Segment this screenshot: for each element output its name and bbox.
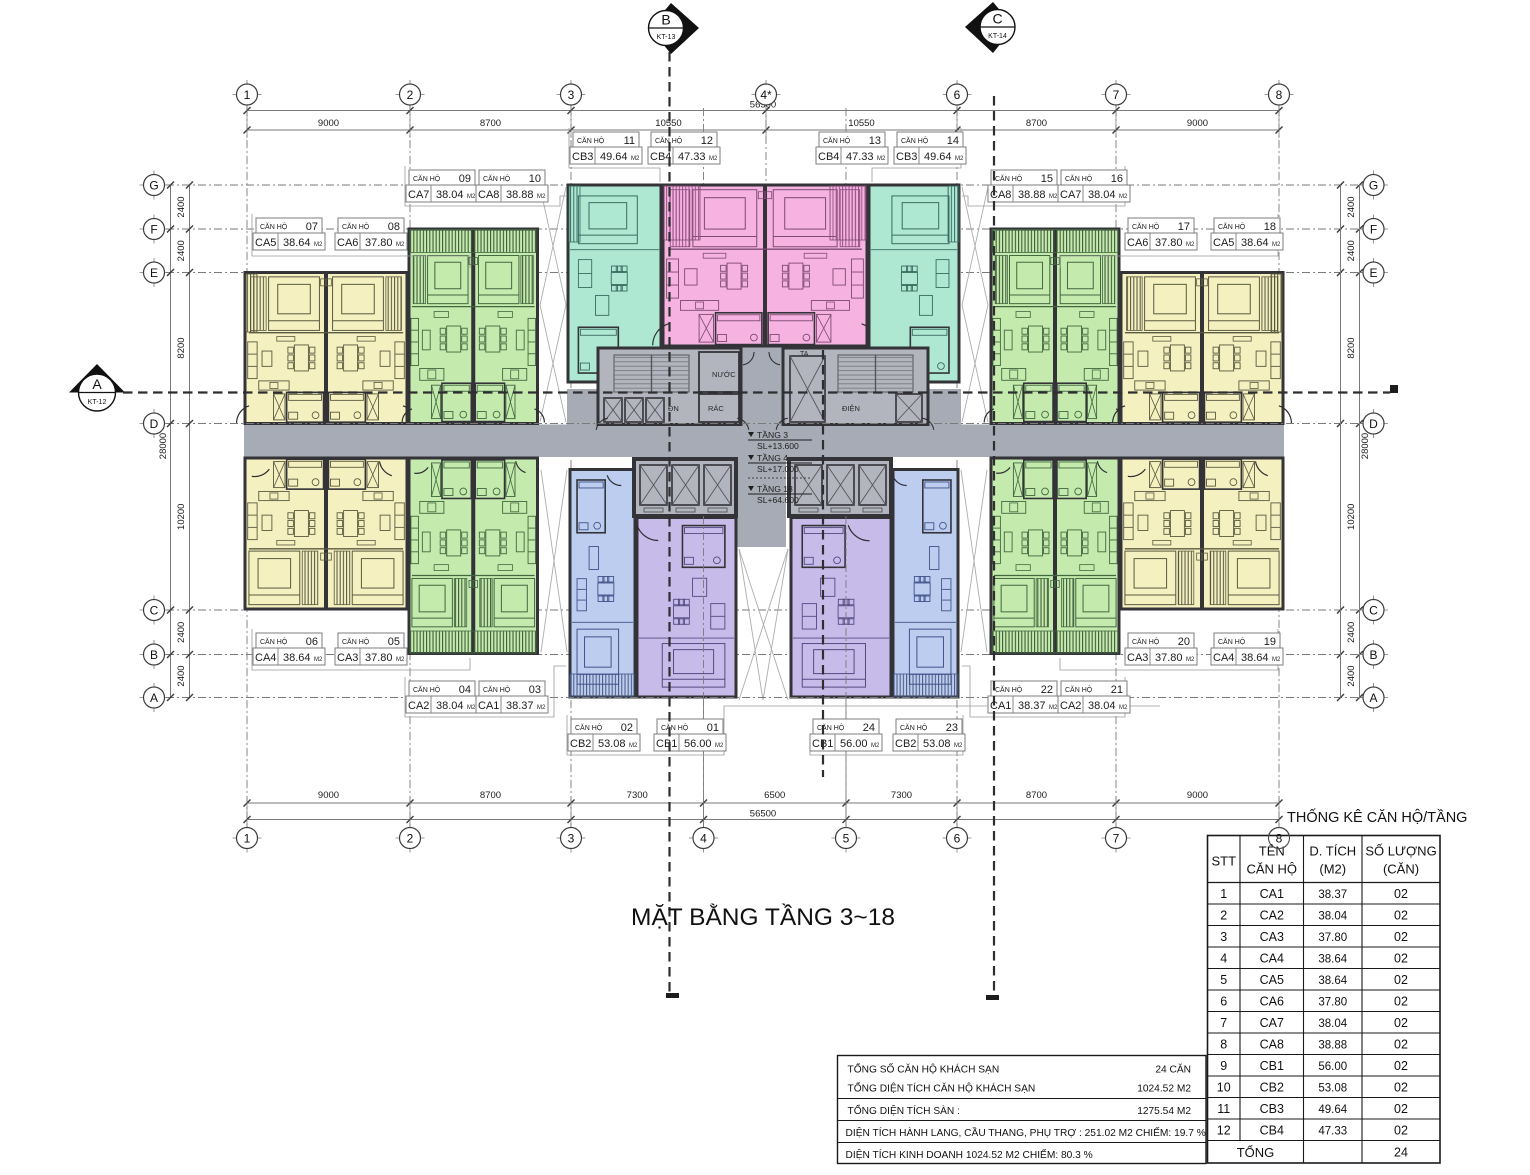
svg-text:CB2: CB2 <box>570 738 591 750</box>
svg-text:KT-12: KT-12 <box>88 399 107 406</box>
svg-text:28000: 28000 <box>1360 433 1371 459</box>
svg-text:G: G <box>149 178 158 192</box>
svg-text:38.64: 38.64 <box>283 652 311 664</box>
svg-text:3: 3 <box>568 88 575 102</box>
svg-text:38.37: 38.37 <box>506 700 534 712</box>
svg-text:B: B <box>1369 648 1377 662</box>
svg-text:C: C <box>1369 603 1378 617</box>
svg-text:CĂN HỘ: CĂN HỘ <box>342 222 370 231</box>
svg-text:A: A <box>150 691 158 705</box>
svg-text:CA3: CA3 <box>1260 930 1284 944</box>
svg-text:CĂN HỘ: CĂN HỘ <box>575 723 603 732</box>
svg-text:10550: 10550 <box>848 118 874 129</box>
svg-text:CĂN HỘ: CĂN HỘ <box>413 174 441 183</box>
svg-text:07: 07 <box>306 221 318 233</box>
svg-text:37.80: 37.80 <box>1318 932 1347 944</box>
svg-text:M2: M2 <box>954 743 963 749</box>
svg-text:CA4: CA4 <box>255 652 276 664</box>
svg-text:M2: M2 <box>396 242 405 248</box>
svg-text:7: 7 <box>1113 831 1120 845</box>
svg-text:02: 02 <box>621 722 633 734</box>
svg-text:01: 01 <box>707 722 719 734</box>
svg-text:37.80: 37.80 <box>1155 237 1183 249</box>
svg-text:56.00: 56.00 <box>684 738 712 750</box>
svg-text:2400: 2400 <box>176 240 187 261</box>
svg-text:F: F <box>150 222 157 236</box>
svg-text:38.88: 38.88 <box>1318 1040 1347 1052</box>
svg-text:CA4: CA4 <box>1260 952 1284 966</box>
svg-text:38.04: 38.04 <box>1318 911 1347 923</box>
svg-text:TỔNG: TỔNG <box>1237 1145 1275 1160</box>
svg-text:12: 12 <box>1217 1124 1231 1138</box>
svg-text:2400: 2400 <box>1346 240 1357 261</box>
svg-text:38.04: 38.04 <box>1088 189 1116 201</box>
svg-text:23: 23 <box>946 722 958 734</box>
svg-text:6: 6 <box>1220 995 1227 1009</box>
svg-text:49.64: 49.64 <box>1318 1104 1347 1116</box>
svg-text:47.33: 47.33 <box>846 151 874 163</box>
svg-text:SL+17.000: SL+17.000 <box>757 464 799 474</box>
svg-text:M2: M2 <box>1049 194 1058 200</box>
svg-text:M2: M2 <box>1272 242 1281 248</box>
svg-text:16: 16 <box>1111 173 1123 185</box>
svg-text:02: 02 <box>1394 887 1408 901</box>
svg-text:1024.52 M2: 1024.52 M2 <box>1137 1084 1191 1095</box>
svg-text:THỐNG KÊ CĂN HỘ/TẦNG: THỐNG KÊ CĂN HỘ/TẦNG <box>1287 808 1467 826</box>
svg-text:20: 20 <box>1178 636 1190 648</box>
svg-text:4: 4 <box>700 831 707 845</box>
svg-text:7300: 7300 <box>627 790 648 801</box>
svg-text:D: D <box>150 417 159 431</box>
svg-text:6500: 6500 <box>764 790 785 801</box>
svg-text:37.80: 37.80 <box>365 237 393 249</box>
svg-text:CĂN HỘ: CĂN HỘ <box>1246 862 1297 877</box>
svg-text:SL+13.600: SL+13.600 <box>757 441 799 451</box>
svg-text:M2: M2 <box>1119 194 1128 200</box>
svg-text:M2: M2 <box>1049 705 1058 711</box>
svg-text:9000: 9000 <box>1187 790 1208 801</box>
svg-text:02: 02 <box>1394 973 1408 987</box>
svg-text:02: 02 <box>1394 952 1408 966</box>
svg-text:2400: 2400 <box>176 196 187 217</box>
svg-text:05: 05 <box>388 636 400 648</box>
svg-text:9000: 9000 <box>318 118 339 129</box>
svg-text:C: C <box>992 11 1002 27</box>
svg-text:CA6: CA6 <box>1127 237 1148 249</box>
svg-text:1: 1 <box>244 831 251 845</box>
svg-text:D: D <box>1369 417 1378 431</box>
svg-text:38.88: 38.88 <box>1018 189 1046 201</box>
svg-text:10: 10 <box>1217 1081 1231 1095</box>
svg-text:STT: STT <box>1211 854 1236 869</box>
svg-text:12: 12 <box>701 135 713 147</box>
svg-text:M2: M2 <box>715 743 724 749</box>
svg-text:4*: 4* <box>760 88 772 102</box>
svg-text:CĂN HỘ: CĂN HỘ <box>995 685 1023 694</box>
svg-text:37.80: 37.80 <box>1318 997 1347 1009</box>
svg-text:9: 9 <box>1220 1059 1227 1073</box>
svg-text:CB1: CB1 <box>1260 1059 1284 1073</box>
svg-text:M2: M2 <box>537 194 546 200</box>
svg-text:CĂN HỘ: CĂN HỘ <box>577 136 605 145</box>
svg-text:02: 02 <box>1394 909 1408 923</box>
svg-text:47.33: 47.33 <box>678 151 706 163</box>
svg-text:E: E <box>1369 266 1377 280</box>
svg-text:CA1: CA1 <box>478 700 499 712</box>
svg-text:CĂN HỘ: CĂN HỘ <box>260 222 288 231</box>
svg-text:M2: M2 <box>467 705 476 711</box>
svg-text:37.80: 37.80 <box>1155 652 1183 664</box>
svg-text:56500: 56500 <box>750 809 776 820</box>
svg-text:38.64: 38.64 <box>1241 237 1269 249</box>
svg-text:8700: 8700 <box>1026 118 1047 129</box>
svg-text:E: E <box>150 266 158 280</box>
svg-text:5: 5 <box>843 831 850 845</box>
svg-text:DIỆN TÍCH KINH DOANH 1024.52 M: DIỆN TÍCH KINH DOANH 1024.52 M2 CHIẾM: 8… <box>846 1148 1093 1161</box>
svg-text:24 CĂN: 24 CĂN <box>1155 1063 1191 1076</box>
svg-text:M2: M2 <box>877 156 886 162</box>
svg-text:49.64: 49.64 <box>600 151 628 163</box>
svg-text:CA1: CA1 <box>1260 887 1284 901</box>
svg-text:CA5: CA5 <box>1260 973 1284 987</box>
svg-text:CA6: CA6 <box>337 237 358 249</box>
svg-text:B: B <box>661 12 670 28</box>
svg-text:13: 13 <box>869 135 881 147</box>
svg-text:CĂN HỘ: CĂN HỘ <box>483 685 511 694</box>
svg-text:CA2: CA2 <box>408 700 429 712</box>
svg-text:(CĂN): (CĂN) <box>1383 862 1419 877</box>
svg-text:38.37: 38.37 <box>1018 700 1046 712</box>
svg-text:C: C <box>150 603 159 617</box>
svg-text:09: 09 <box>459 173 471 185</box>
svg-text:2: 2 <box>1220 909 1227 923</box>
svg-text:M2: M2 <box>629 743 638 749</box>
svg-text:8: 8 <box>1276 88 1283 102</box>
svg-text:2: 2 <box>407 88 414 102</box>
svg-text:2400: 2400 <box>176 622 187 643</box>
svg-text:38.04: 38.04 <box>436 700 464 712</box>
svg-text:F: F <box>1370 222 1377 236</box>
svg-text:CĂN HỘ: CĂN HỘ <box>1132 222 1160 231</box>
svg-text:TỔNG DIỆN TÍCH SÀN :: TỔNG DIỆN TÍCH SÀN : <box>848 1104 960 1117</box>
svg-text:CB2: CB2 <box>895 738 916 750</box>
svg-text:KT-14: KT-14 <box>988 33 1007 40</box>
svg-text:TẦNG 18: TẦNG 18 <box>757 484 793 494</box>
svg-text:9000: 9000 <box>318 790 339 801</box>
svg-text:B: B <box>150 648 158 662</box>
svg-text:M2: M2 <box>1186 242 1195 248</box>
svg-text:24: 24 <box>863 722 875 734</box>
svg-text:CA3: CA3 <box>1127 652 1148 664</box>
svg-text:1: 1 <box>244 88 251 102</box>
svg-text:TỔNG SỐ CĂN HỘ KHÁCH SẠN: TỔNG SỐ CĂN HỘ KHÁCH SẠN <box>848 1062 1000 1076</box>
svg-text:02: 02 <box>1394 1081 1408 1095</box>
svg-text:CĂN HỘ: CĂN HỘ <box>1218 637 1246 646</box>
svg-text:8200: 8200 <box>176 337 187 358</box>
svg-text:CA6: CA6 <box>1260 995 1284 1009</box>
svg-text:TẦNG 3: TẦNG 3 <box>757 430 788 440</box>
svg-text:CB3: CB3 <box>572 151 593 163</box>
svg-text:CB4: CB4 <box>1260 1124 1284 1138</box>
svg-text:DIỆN TÍCH HÀNH LANG, CẦU THANG: DIỆN TÍCH HÀNH LANG, CẦU THANG, PHỤ TRỢ … <box>846 1126 1206 1139</box>
svg-text:1275.54 M2: 1275.54 M2 <box>1137 1106 1191 1117</box>
svg-text:M2: M2 <box>314 242 323 248</box>
svg-text:37.80: 37.80 <box>365 652 393 664</box>
svg-text:M2: M2 <box>1119 705 1128 711</box>
svg-text:02: 02 <box>1394 930 1408 944</box>
svg-text:MẶT BẰNG TẦNG 3~18: MẶT BẰNG TẦNG 3~18 <box>631 903 895 931</box>
svg-text:14: 14 <box>947 135 959 147</box>
svg-text:CB4: CB4 <box>818 151 839 163</box>
svg-text:CĂN HỘ: CĂN HỘ <box>900 723 928 732</box>
svg-text:TA: TA <box>800 351 809 358</box>
svg-text:CĂN HỘ: CĂN HỘ <box>483 174 511 183</box>
svg-text:M2: M2 <box>467 194 476 200</box>
svg-text:49.64: 49.64 <box>924 151 952 163</box>
svg-text:7: 7 <box>1113 88 1120 102</box>
svg-text:7: 7 <box>1220 1016 1227 1030</box>
svg-text:2400: 2400 <box>1346 665 1357 686</box>
svg-text:M2: M2 <box>1186 657 1195 663</box>
svg-text:5: 5 <box>1220 973 1227 987</box>
svg-text:CA8: CA8 <box>1260 1038 1284 1052</box>
svg-text:D. TÍCH: D. TÍCH <box>1309 844 1356 859</box>
svg-text:(M2): (M2) <box>1319 862 1346 877</box>
svg-text:CA7: CA7 <box>408 189 429 201</box>
svg-text:8700: 8700 <box>1026 790 1047 801</box>
svg-text:CA4: CA4 <box>1213 652 1234 664</box>
svg-text:38.64: 38.64 <box>1241 652 1269 664</box>
svg-text:SL+64.600: SL+64.600 <box>757 495 799 505</box>
svg-text:38.37: 38.37 <box>1318 889 1347 901</box>
svg-text:M2: M2 <box>871 743 880 749</box>
svg-text:2: 2 <box>407 831 414 845</box>
svg-text:53.08: 53.08 <box>923 738 951 750</box>
svg-text:18: 18 <box>1264 221 1276 233</box>
svg-text:38.88: 38.88 <box>506 189 534 201</box>
svg-text:M2: M2 <box>631 156 640 162</box>
svg-text:CA2: CA2 <box>1060 700 1081 712</box>
svg-text:8700: 8700 <box>480 118 501 129</box>
svg-text:02: 02 <box>1394 1059 1408 1073</box>
svg-text:CB4: CB4 <box>650 151 671 163</box>
svg-text:CA7: CA7 <box>1260 1016 1284 1030</box>
svg-text:CB2: CB2 <box>1260 1081 1284 1095</box>
svg-text:24: 24 <box>1394 1146 1408 1160</box>
svg-text:21: 21 <box>1111 684 1123 696</box>
svg-text:CB1: CB1 <box>656 738 677 750</box>
svg-text:38.64: 38.64 <box>1318 975 1347 987</box>
svg-text:22: 22 <box>1041 684 1053 696</box>
svg-text:CĂN HỘ: CĂN HỘ <box>901 136 929 145</box>
svg-text:7300: 7300 <box>891 790 912 801</box>
svg-text:CĂN HỘ: CĂN HỘ <box>260 637 288 646</box>
svg-text:53.08: 53.08 <box>1318 1083 1347 1095</box>
svg-text:TẦNG 4: TẦNG 4 <box>757 453 788 463</box>
svg-text:ĐIỆN: ĐIỆN <box>842 404 860 413</box>
svg-text:M2: M2 <box>955 156 964 162</box>
svg-text:38.04: 38.04 <box>1318 1018 1347 1030</box>
svg-text:M2: M2 <box>314 657 323 663</box>
svg-text:CA5: CA5 <box>1213 237 1234 249</box>
svg-text:8: 8 <box>1276 831 1283 845</box>
svg-text:11: 11 <box>1217 1102 1230 1116</box>
svg-text:17: 17 <box>1178 221 1190 233</box>
svg-text:2400: 2400 <box>1346 196 1357 217</box>
svg-text:28000: 28000 <box>158 433 169 459</box>
svg-text:19: 19 <box>1264 636 1276 648</box>
svg-text:3: 3 <box>1220 930 1227 944</box>
svg-text:38.64: 38.64 <box>283 237 311 249</box>
svg-text:M2: M2 <box>709 156 718 162</box>
svg-text:9000: 9000 <box>1187 118 1208 129</box>
svg-text:02: 02 <box>1394 1102 1408 1116</box>
svg-text:11: 11 <box>624 135 635 147</box>
svg-text:A: A <box>92 376 102 392</box>
svg-text:M2: M2 <box>1272 657 1281 663</box>
svg-text:2400: 2400 <box>1346 622 1357 643</box>
svg-text:M2: M2 <box>396 657 405 663</box>
svg-text:1: 1 <box>1220 887 1227 901</box>
svg-text:G: G <box>1369 178 1378 192</box>
svg-text:KT-13: KT-13 <box>657 34 676 41</box>
svg-text:02: 02 <box>1394 1038 1408 1052</box>
svg-text:04: 04 <box>459 684 471 696</box>
svg-text:8700: 8700 <box>480 790 501 801</box>
svg-text:CB3: CB3 <box>1260 1102 1284 1116</box>
svg-text:10200: 10200 <box>176 504 187 530</box>
svg-text:CA8: CA8 <box>478 189 499 201</box>
svg-text:CĂN HỘ: CĂN HỘ <box>1132 637 1160 646</box>
svg-text:CĂN HỘ: CĂN HỘ <box>1065 685 1093 694</box>
svg-text:CB3: CB3 <box>896 151 917 163</box>
svg-text:56.00: 56.00 <box>1318 1061 1347 1073</box>
svg-text:CĂN HỘ: CĂN HỘ <box>823 136 851 145</box>
svg-text:8: 8 <box>1220 1038 1227 1052</box>
svg-text:CĂN HỘ: CĂN HỘ <box>342 637 370 646</box>
svg-text:NƯỚC: NƯỚC <box>712 370 736 379</box>
svg-text:CĂN HỘ: CĂN HỘ <box>995 174 1023 183</box>
svg-text:SỐ LƯỢNG: SỐ LƯỢNG <box>1365 844 1436 859</box>
svg-text:8200: 8200 <box>1346 337 1357 358</box>
svg-text:CA3: CA3 <box>337 652 358 664</box>
svg-text:53.08: 53.08 <box>598 738 626 750</box>
svg-text:2400: 2400 <box>176 665 187 686</box>
svg-text:CĂN HỘ: CĂN HỘ <box>1218 222 1246 231</box>
svg-text:CA5: CA5 <box>255 237 276 249</box>
svg-text:TỔNG DIỆN TÍCH CĂN HỘ KHÁCH SẠ: TỔNG DIỆN TÍCH CĂN HỘ KHÁCH SẠN <box>848 1082 1036 1095</box>
svg-text:10: 10 <box>529 173 541 185</box>
svg-text:38.04: 38.04 <box>1088 700 1116 712</box>
svg-text:08: 08 <box>388 221 400 233</box>
svg-text:02: 02 <box>1394 1124 1408 1138</box>
svg-text:CA7: CA7 <box>1060 189 1081 201</box>
svg-text:6: 6 <box>954 831 961 845</box>
svg-text:38.64: 38.64 <box>1318 954 1347 966</box>
svg-text:38.04: 38.04 <box>436 189 464 201</box>
svg-text:CA2: CA2 <box>1260 909 1284 923</box>
svg-text:CĂN HỘ: CĂN HỘ <box>413 685 441 694</box>
svg-text:56.00: 56.00 <box>840 738 868 750</box>
svg-text:CĂN HỘ: CĂN HỘ <box>1065 174 1093 183</box>
svg-text:47.33: 47.33 <box>1318 1126 1347 1138</box>
svg-text:3: 3 <box>568 831 575 845</box>
svg-text:10200: 10200 <box>1346 504 1357 530</box>
svg-text:6: 6 <box>954 88 961 102</box>
svg-text:CĂN HỘ: CĂN HỘ <box>661 723 689 732</box>
svg-text:02: 02 <box>1394 995 1408 1009</box>
svg-text:06: 06 <box>306 636 318 648</box>
svg-text:4: 4 <box>1220 952 1227 966</box>
svg-text:03: 03 <box>529 684 541 696</box>
svg-text:02: 02 <box>1394 1016 1408 1030</box>
svg-text:RÁC: RÁC <box>708 404 724 413</box>
svg-text:15: 15 <box>1041 173 1053 185</box>
svg-text:A: A <box>1369 691 1377 705</box>
svg-text:CĂN HỘ: CĂN HỘ <box>817 723 845 732</box>
svg-text:M2: M2 <box>537 705 546 711</box>
